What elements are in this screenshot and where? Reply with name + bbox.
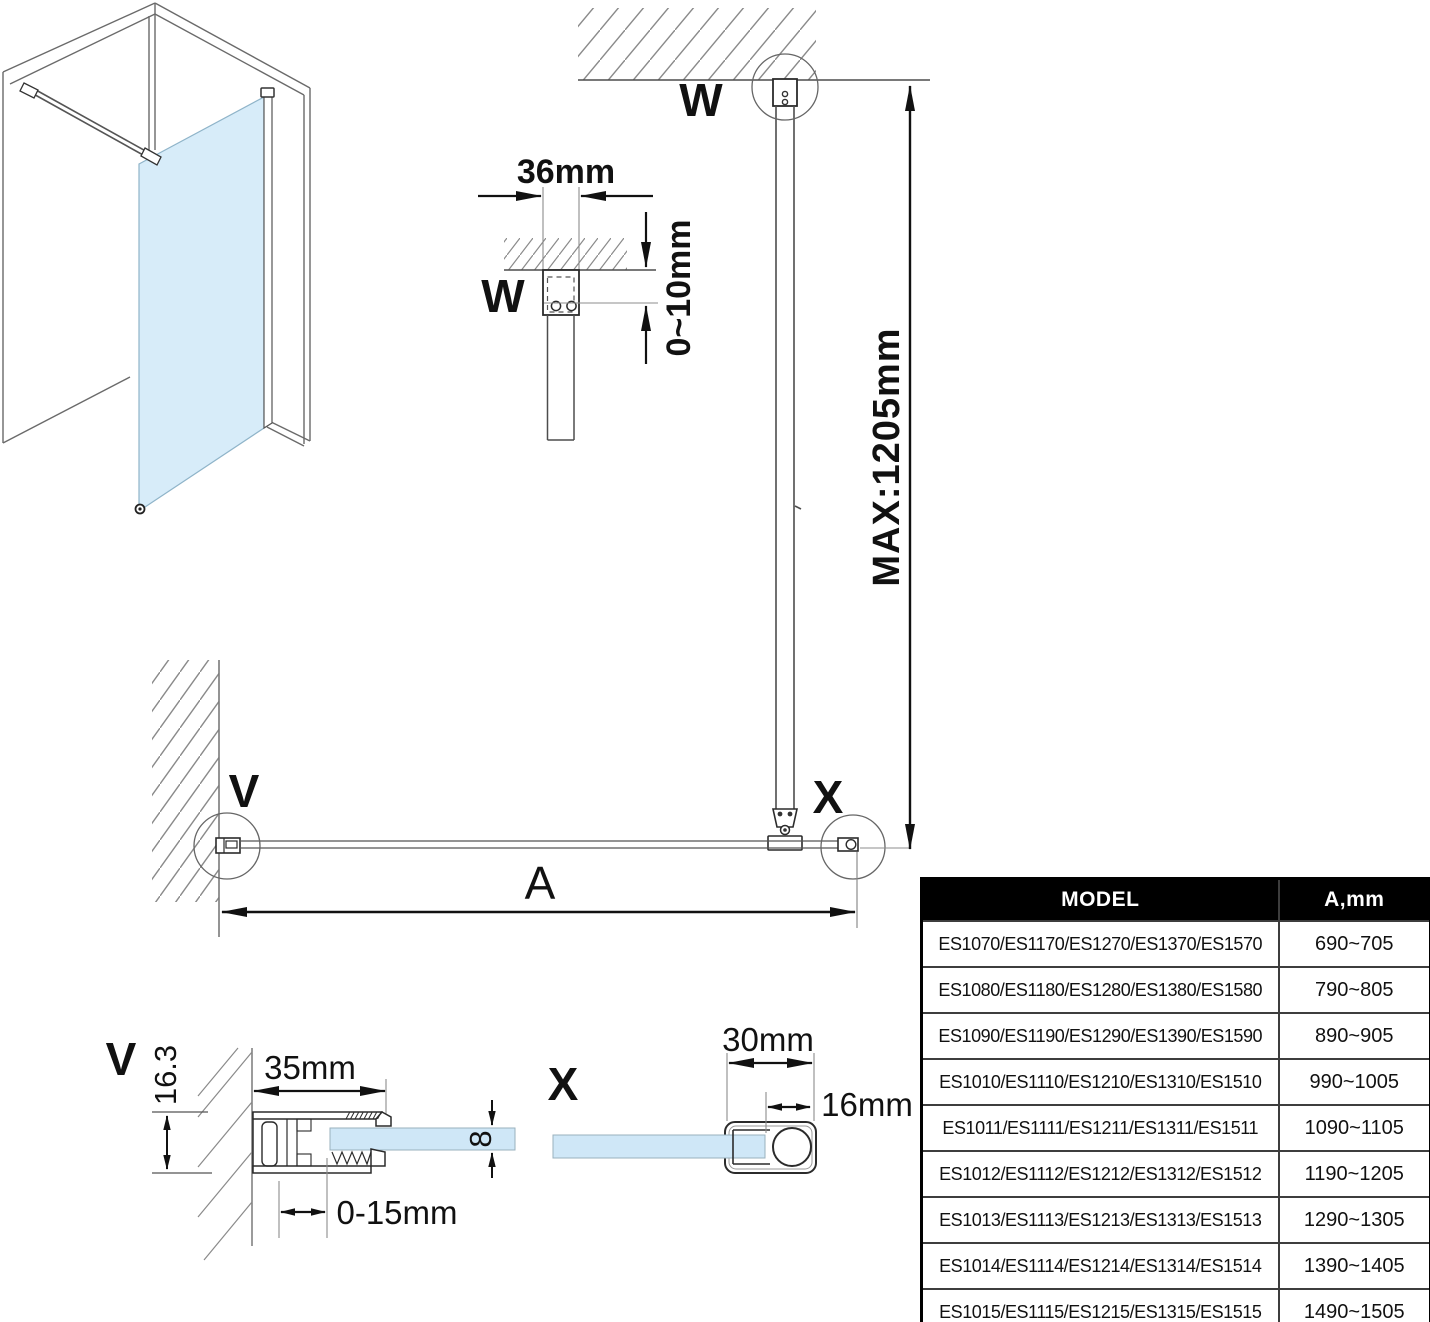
- table-row: ES1011/ES1111/ES1211/ES1311/ES1511 1090~…: [922, 1105, 1430, 1151]
- v-detail-wall-hatch: [198, 1048, 252, 1260]
- table-row: ES1012/ES1112/ES1212/ES1312/ES1512 1190~…: [922, 1151, 1430, 1197]
- a-mm-cell: 1190~1205: [1279, 1151, 1430, 1197]
- dim-16-3-label: 16.3: [148, 1045, 183, 1105]
- main-x-label: X: [813, 771, 844, 823]
- w-detail-label: W: [481, 270, 525, 322]
- main-support-bar: [776, 106, 801, 809]
- iso-top-cap: [261, 88, 274, 97]
- bracket-screw: [782, 91, 787, 96]
- table-header-row: MODEL A,mm: [922, 879, 1430, 922]
- a-mm-cell: 1390~1405: [1279, 1243, 1430, 1289]
- x-detail-bar-circle: [773, 1128, 811, 1166]
- a-mm-cell: 690~705: [1279, 921, 1430, 967]
- bracket-screw: [782, 99, 787, 104]
- main-wall-bracket: [216, 838, 240, 853]
- dim-span-a-label: A: [525, 857, 556, 909]
- isometric-overview: [3, 3, 310, 514]
- model-cell: ES1013/ES1113/ES1213/ES1313/ES1513: [922, 1197, 1279, 1243]
- dim-0-10mm-label: 0~10mm: [660, 219, 698, 356]
- table-row: ES1014/ES1114/ES1214/ES1314/ES1514 1390~…: [922, 1243, 1430, 1289]
- dim-0-15mm-label: 0-15mm: [336, 1194, 457, 1231]
- technical-drawing-page: 36mm 0~10mm W: [0, 0, 1430, 1322]
- main-w-label: W: [679, 74, 723, 126]
- dim-36mm-label: 36mm: [517, 153, 615, 191]
- model-cell: ES1012/ES1112/ES1212/ES1312/ES1512: [922, 1151, 1279, 1197]
- model-cell: ES1011/ES1111/ES1211/ES1311/ES1511: [922, 1105, 1279, 1151]
- x-detail-label: X: [548, 1058, 579, 1110]
- table-row: ES1015/ES1115/ES1215/ES1315/ES1515 1490~…: [922, 1289, 1430, 1322]
- w-detail-bar: [548, 315, 575, 440]
- dim-30mm-label: 30mm: [722, 1021, 814, 1058]
- w-detail: 36mm 0~10mm W: [478, 153, 698, 440]
- v-detail-label: V: [106, 1033, 137, 1085]
- dim-16mm-label: 16mm: [821, 1086, 913, 1123]
- table-header-a-mm: A,mm: [1279, 879, 1430, 922]
- iso-wall-profile: [264, 90, 272, 428]
- model-cell: ES1015/ES1115/ES1215/ES1315/ES1515: [922, 1289, 1279, 1322]
- model-cell: ES1090/ES1190/ES1290/ES1390/ES1590: [922, 1013, 1279, 1059]
- main-wall-hatch: [152, 660, 219, 902]
- table-row: ES1090/ES1190/ES1290/ES1390/ES1590 890~9…: [922, 1013, 1430, 1059]
- a-mm-cell: 1490~1505: [1279, 1289, 1430, 1322]
- main-v-label: V: [229, 765, 260, 817]
- main-ceiling-hatch: [578, 8, 816, 80]
- main-bar-hinge: [768, 809, 802, 850]
- model-cell: ES1070/ES1170/ES1270/ES1370/ES1570: [922, 921, 1279, 967]
- x-detail: X 30mm 16mm: [548, 1021, 913, 1173]
- a-mm-cell: 990~1005: [1279, 1059, 1430, 1105]
- model-table: MODEL A,mm ES1070/ES1170/ES1270/ES1370/E…: [920, 877, 1430, 1322]
- a-mm-cell: 890~905: [1279, 1013, 1430, 1059]
- dim-8-label: 8: [463, 1130, 498, 1147]
- a-mm-cell: 1090~1105: [1279, 1105, 1430, 1151]
- iso-support-bar: [34, 90, 152, 158]
- main-glass-edge: [241, 841, 838, 848]
- v-detail: V 16.3 35mm: [106, 1033, 515, 1260]
- table-row: ES1013/ES1113/ES1213/ES1313/ES1513 1290~…: [922, 1197, 1430, 1243]
- table-row: ES1010/ES1110/ES1210/ES1310/ES1510 990~1…: [922, 1059, 1430, 1105]
- model-cell: ES1080/ES1180/ES1280/ES1380/ES1580: [922, 967, 1279, 1013]
- table-row: ES1070/ES1170/ES1270/ES1370/ES1570 690~7…: [922, 921, 1430, 967]
- w-detail-ceiling-hatch: [504, 238, 627, 270]
- iso-left-wall: [3, 3, 155, 443]
- model-cell: ES1014/ES1114/ES1214/ES1314/ES1514: [922, 1243, 1279, 1289]
- table-row: ES1080/ES1180/ES1280/ES1380/ES1580 790~8…: [922, 967, 1430, 1013]
- a-mm-cell: 790~805: [1279, 967, 1430, 1013]
- main-glass-end-cap: [838, 838, 858, 851]
- a-mm-cell: 1290~1305: [1279, 1197, 1430, 1243]
- table-header-model: MODEL: [922, 879, 1279, 922]
- dim-35mm-label: 35mm: [264, 1049, 356, 1086]
- iso-bar-wall-anchor: [20, 83, 38, 98]
- dim-max-height-label: MAX:1205mm: [866, 327, 908, 586]
- iso-bottom-foot: [136, 505, 145, 514]
- model-cell: ES1010/ES1110/ES1210/ES1310/ES1510: [922, 1059, 1279, 1105]
